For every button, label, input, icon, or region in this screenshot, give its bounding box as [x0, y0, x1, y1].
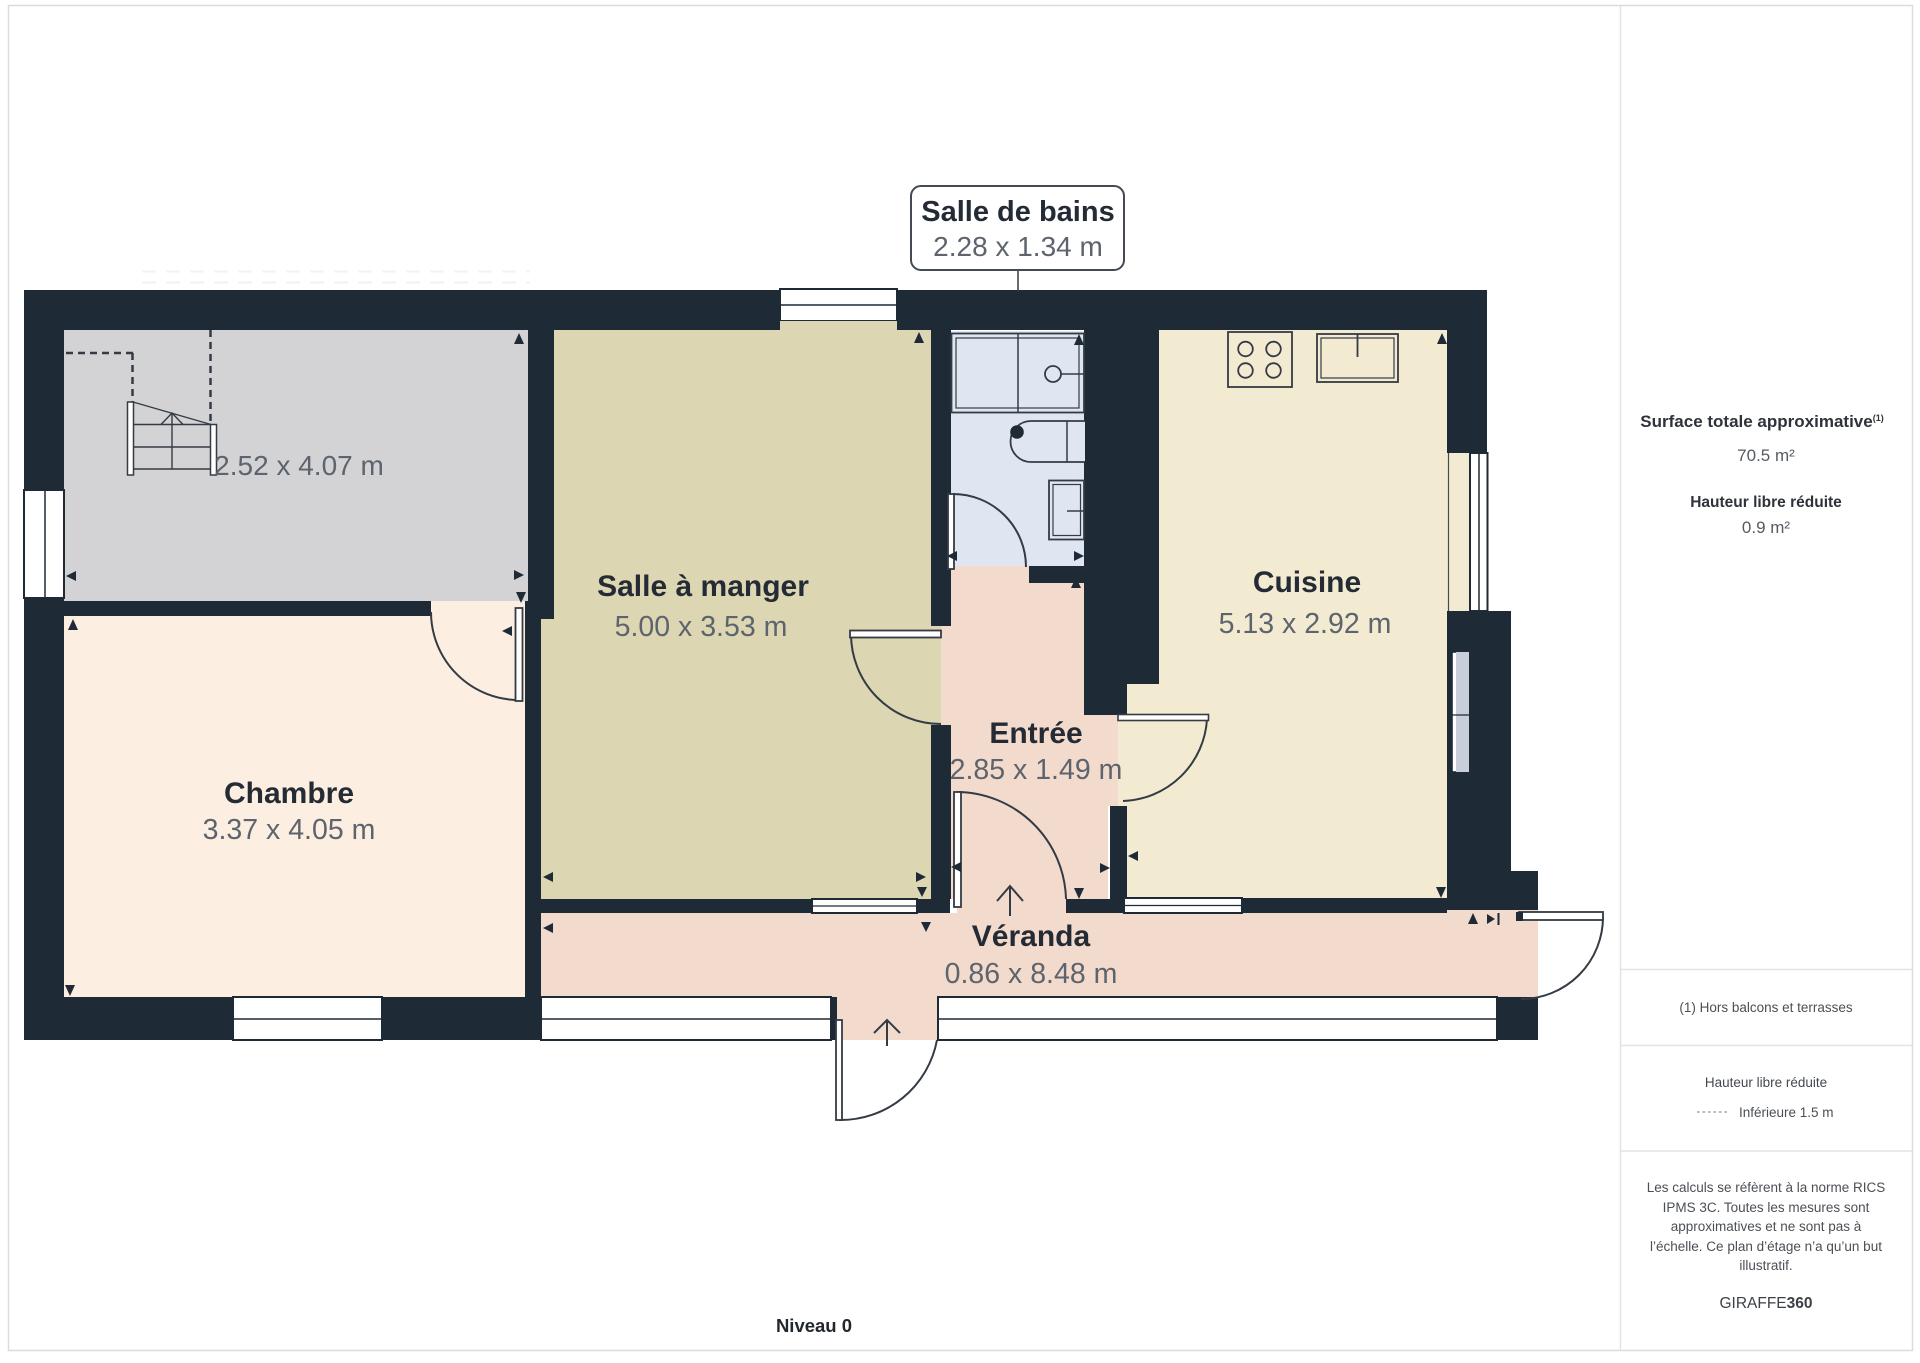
svg-text:3.37 x 4.05 m: 3.37 x 4.05 m: [203, 814, 376, 846]
svg-text:Chambre: Chambre: [224, 777, 354, 810]
svg-text:Inférieure 1.5 m: Inférieure 1.5 m: [1739, 1105, 1834, 1120]
svg-text:0.86 x 8.48 m: 0.86 x 8.48 m: [945, 958, 1118, 990]
svg-text:Entrée: Entrée: [989, 717, 1082, 750]
svg-text:Niveau 0: Niveau 0: [776, 1315, 852, 1336]
svg-text:0.9 m²: 0.9 m²: [1742, 518, 1791, 537]
svg-text:l’échelle. Ce plan d’étage n’a: l’échelle. Ce plan d’étage n’a qu’un but: [1650, 1239, 1882, 1254]
svg-text:Cuisine: Cuisine: [1253, 566, 1361, 599]
svg-text:Les calculs se réfèrent à la n: Les calculs se réfèrent à la norme RICS: [1647, 1180, 1886, 1195]
svg-text:70.5 m²: 70.5 m²: [1737, 446, 1795, 465]
svg-text:2.85 x 1.49 m: 2.85 x 1.49 m: [950, 754, 1123, 786]
svg-text:Salle à manger: Salle à manger: [597, 570, 809, 603]
svg-text:GIRAFFE360: GIRAFFE360: [1719, 1295, 1812, 1312]
svg-text:5.00 x 3.53 m: 5.00 x 3.53 m: [615, 611, 788, 643]
svg-text:Hauteur libre réduite: Hauteur libre réduite: [1705, 1075, 1827, 1090]
svg-text:illustratif.: illustratif.: [1739, 1258, 1792, 1273]
svg-text:Salle de bains: Salle de bains: [921, 196, 1114, 228]
svg-text:Surface totale approximative(1: Surface totale approximative(1): [1640, 412, 1883, 431]
svg-text:5.13 x 2.92 m: 5.13 x 2.92 m: [1219, 608, 1392, 640]
svg-text:Hauteur libre réduite: Hauteur libre réduite: [1690, 494, 1842, 511]
svg-text:2.52 x 4.07 m: 2.52 x 4.07 m: [214, 450, 384, 481]
svg-text:IPMS 3C. Toutes les mesures so: IPMS 3C. Toutes les mesures sont: [1663, 1200, 1870, 1215]
svg-text:2.28 x 1.34 m: 2.28 x 1.34 m: [933, 231, 1103, 262]
svg-text:approximatives et ne sont pas: approximatives et ne sont pas à: [1671, 1219, 1862, 1234]
svg-text:Véranda: Véranda: [972, 920, 1091, 953]
svg-text:(1) Hors balcons et terrasses: (1) Hors balcons et terrasses: [1679, 1000, 1853, 1015]
